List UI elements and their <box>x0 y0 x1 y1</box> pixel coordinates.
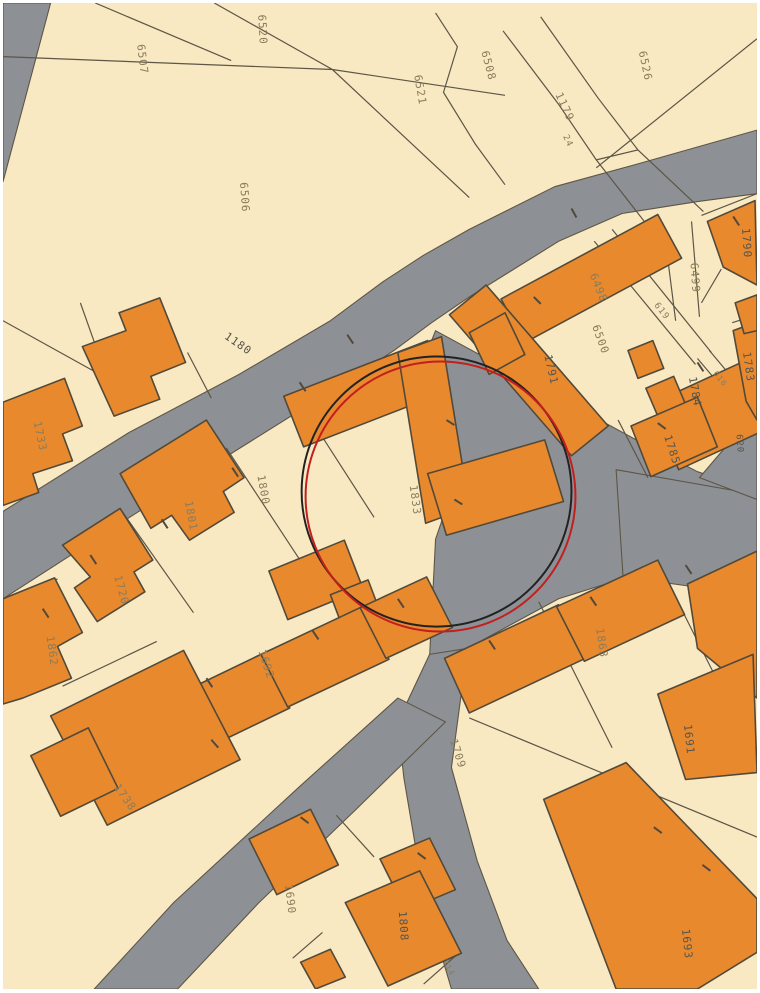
parcel-label-6506: 6506 <box>237 182 252 213</box>
cadastral-map-canvas[interactable]: 6507 6520 6508 6521 6526 1179 24 6506 11… <box>3 3 757 989</box>
parcel-label-1808: 1808 <box>396 911 411 942</box>
parcel-label-6499: 6499 <box>687 262 702 293</box>
parcel-label-6520: 6520 <box>255 14 270 45</box>
map-frame: 6507 6520 6508 6521 6526 1179 24 6506 11… <box>3 3 757 989</box>
street-label-620: 620 <box>734 434 745 454</box>
parcel-label-1790: 1790 <box>739 228 754 259</box>
